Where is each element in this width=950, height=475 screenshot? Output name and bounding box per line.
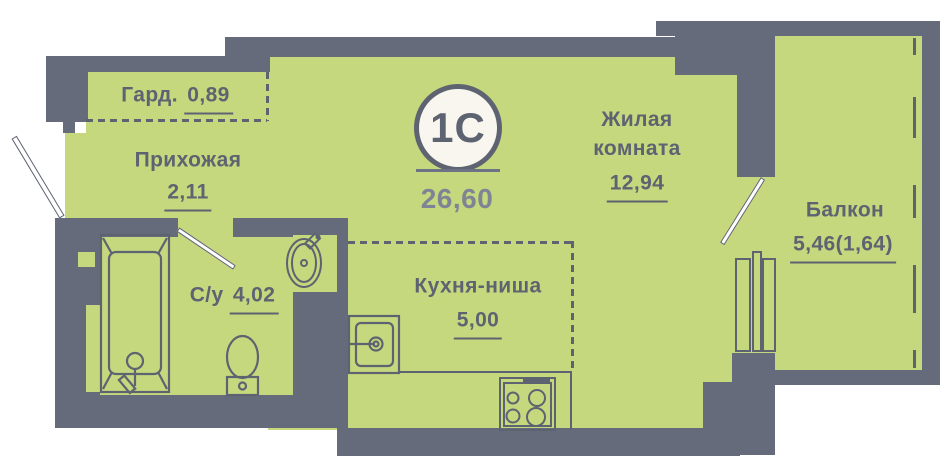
wall — [63, 122, 75, 133]
living-room-area: 12,94 — [607, 170, 668, 203]
hallway-name: Прихожая — [135, 149, 242, 172]
window-glazing-icon — [913, 185, 916, 218]
balcony-area-label: 5,46(1,64) — [790, 231, 896, 264]
kitchen-dashed-boundary — [348, 241, 574, 244]
unit-type-badge: 1С — [414, 84, 502, 172]
window-glazing-icon — [913, 350, 916, 368]
living-room-name-line2: комната — [593, 135, 680, 164]
floor-entry-strip — [65, 133, 86, 218]
wall — [675, 36, 737, 75]
kitchen-dashed-boundary — [571, 241, 574, 373]
kitchen-sink-icon — [348, 314, 401, 375]
bathroom-area: 4,02 — [230, 282, 278, 315]
wall — [775, 370, 940, 385]
window-glazing-icon — [913, 97, 916, 138]
wardrobe-label: Гард. 0,89 — [121, 82, 233, 115]
bathtub-icon — [100, 234, 170, 394]
balcony-name: Балкон — [806, 199, 884, 222]
counter-line — [400, 371, 572, 373]
wardrobe-area: 0,89 — [184, 82, 232, 115]
wall — [732, 353, 775, 382]
bathroom-name: С/у — [190, 284, 224, 307]
wall — [337, 428, 740, 456]
hallway-area: 2,11 — [164, 179, 211, 212]
window-glazing-icon — [913, 265, 916, 313]
kitchen-name: Кухня-ниша — [414, 275, 541, 298]
balcony-label: Балкон — [806, 197, 884, 226]
kitchen-area: 5,00 — [454, 307, 502, 340]
wall — [737, 36, 775, 177]
hallway-area-label: 2,11 — [164, 179, 211, 212]
wall — [922, 36, 940, 385]
living-room-area-label: 12,94 — [607, 170, 668, 203]
balcony-area: 5,46(1,64) — [790, 231, 896, 264]
living-room-name-line1: Жилая — [593, 106, 680, 135]
sink-icon — [286, 232, 326, 292]
balcony-window-icon — [733, 250, 777, 355]
wall-niche-square — [78, 252, 95, 267]
stove-icon — [499, 377, 557, 432]
entrance-door-icon — [12, 136, 65, 219]
floor-living-right — [675, 75, 737, 430]
wall — [656, 21, 940, 36]
wall — [225, 37, 675, 57]
wardrobe-dashed-boundary — [266, 72, 269, 121]
living-room-label: Жилая комната — [593, 106, 680, 164]
bathroom-label: С/у 4,02 — [190, 282, 279, 315]
unit-type-label: 1С — [430, 104, 486, 152]
wardrobe-name: Гард. — [121, 84, 178, 107]
floor-plan: 1С 26,60 Гард. 0,89 Прихожая 2,11 С/у 4,… — [0, 0, 950, 475]
wall-shaft-niche — [86, 305, 100, 392]
toilet-icon — [225, 335, 261, 397]
kitchen-area-label: 5,00 — [454, 307, 502, 340]
wardrobe-dashed-boundary — [86, 119, 267, 122]
counter-line — [570, 371, 572, 430]
kitchen-label: Кухня-ниша — [414, 273, 541, 302]
window-glazing-icon — [913, 38, 916, 55]
badge-divider — [416, 169, 500, 172]
hallway-label: Прихожая — [135, 147, 242, 176]
wall — [46, 56, 88, 122]
total-area: 26,60 — [421, 183, 494, 215]
